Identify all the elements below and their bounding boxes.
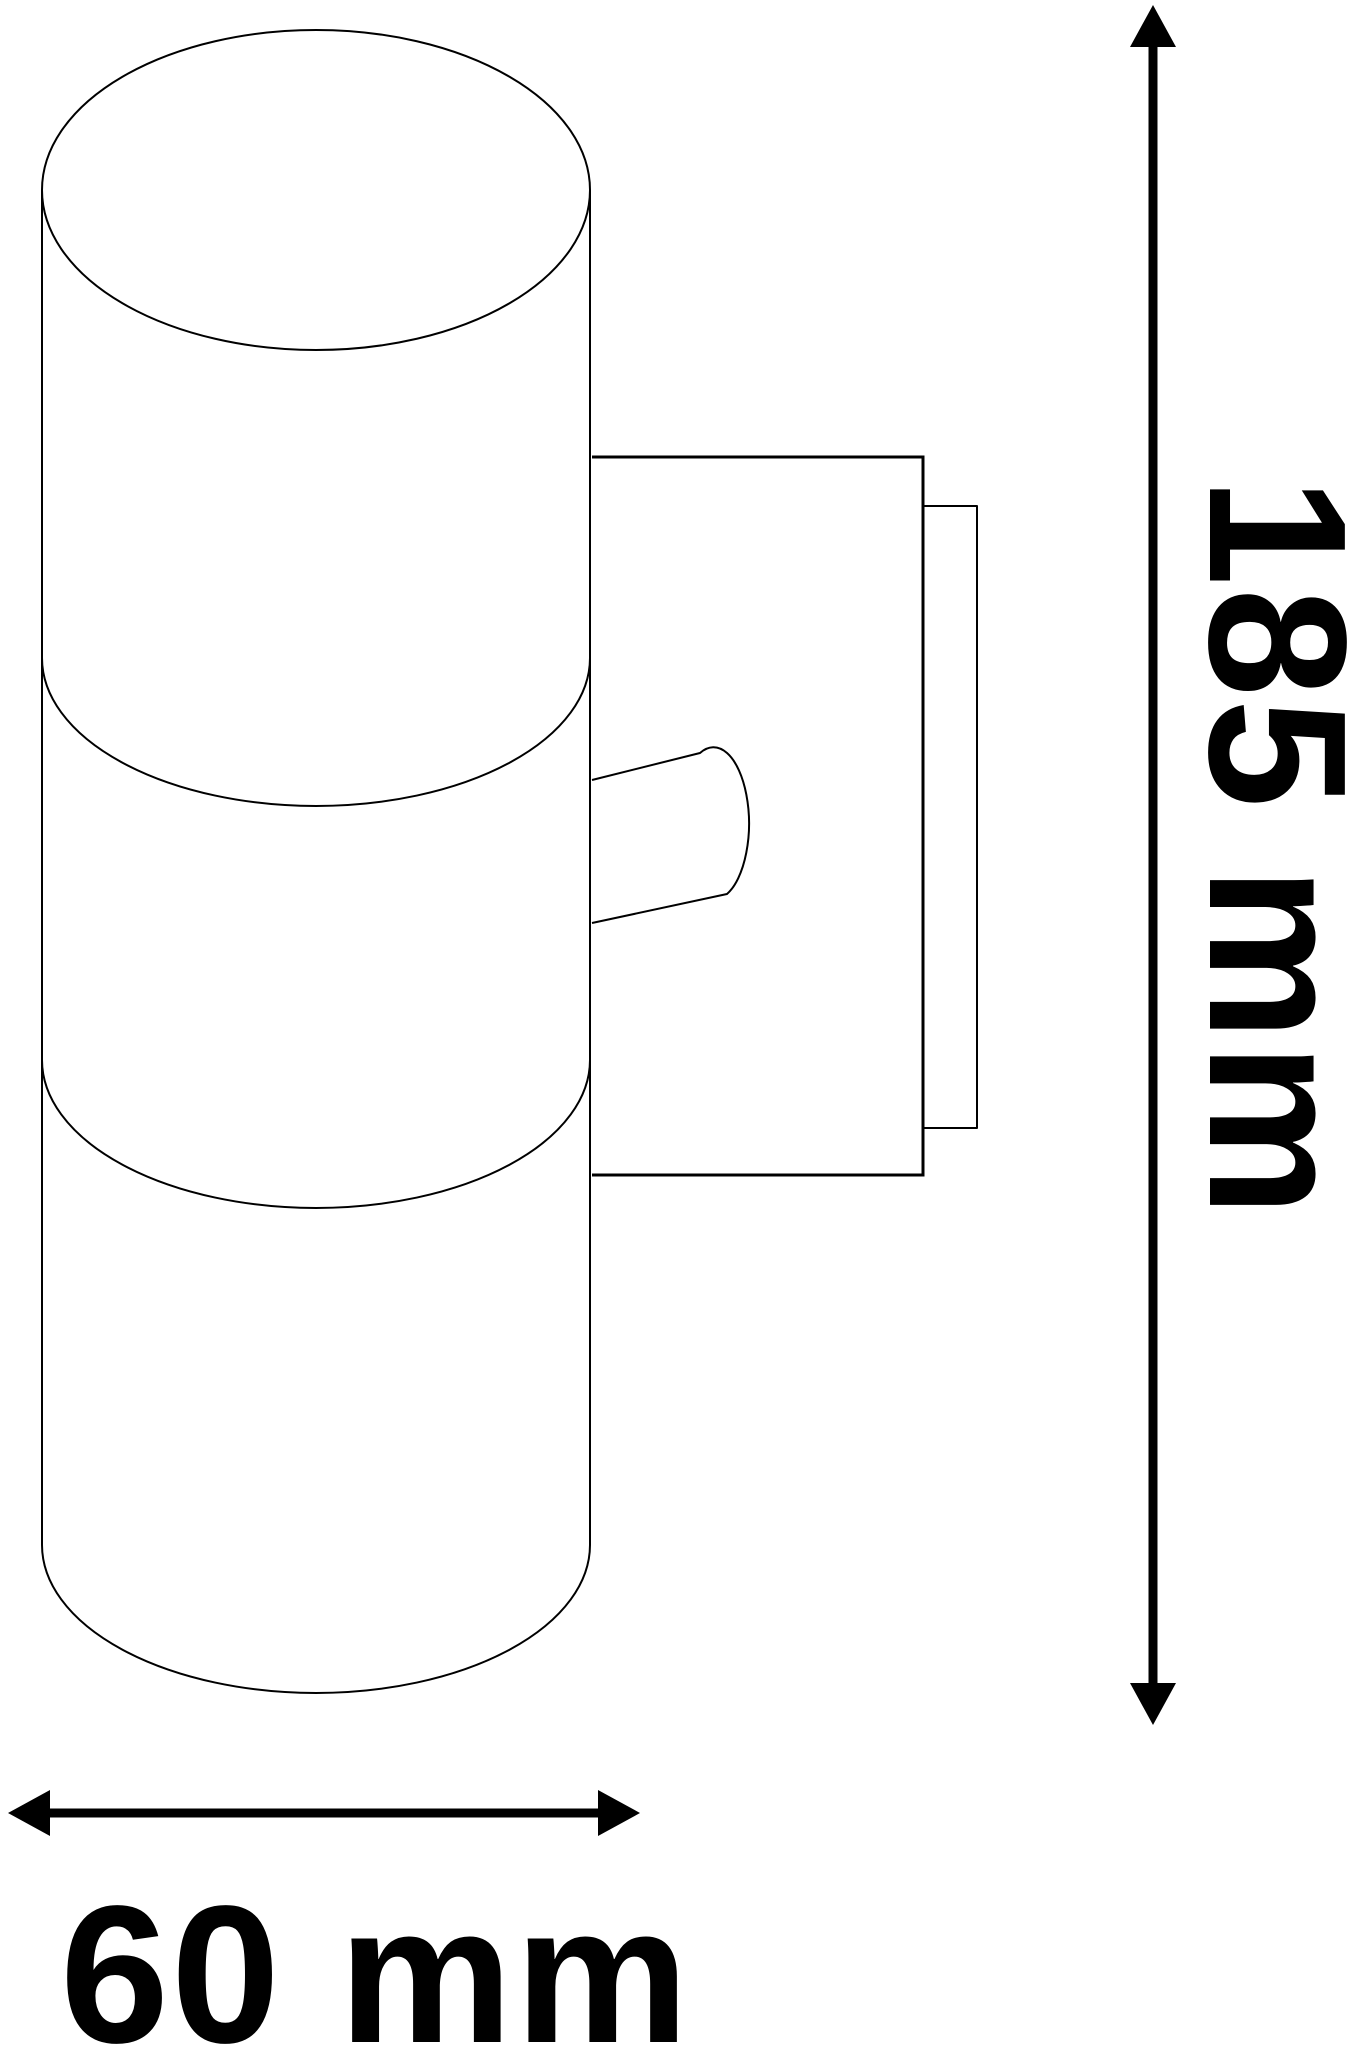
lamp-seam-lower-arc <box>42 1060 590 1208</box>
height-dimension-label: 185 mm <box>1168 477 1366 1219</box>
lamp-dimension-diagram: 185 mm 60 mm <box>0 0 1366 2048</box>
width-arrowhead-left-icon <box>8 1790 50 1836</box>
lamp-seam-upper-arc <box>42 658 590 806</box>
height-arrowhead-top-icon <box>1130 5 1176 47</box>
wall-plate-rect <box>923 506 977 1128</box>
bracket-arm <box>592 747 749 923</box>
width-dimension: 60 mm <box>8 1790 691 2048</box>
width-arrowhead-right-icon <box>598 1790 640 1836</box>
lamp-mount <box>592 457 977 1175</box>
diagram-canvas: 185 mm 60 mm <box>0 0 1366 2048</box>
lamp-top-face-ellipse <box>42 30 590 350</box>
height-arrowhead-bottom-icon <box>1130 1683 1176 1725</box>
lamp-bottom-edge-arc <box>42 1545 590 1693</box>
lamp-body <box>42 30 590 1693</box>
width-dimension-label: 60 mm <box>60 1865 691 2048</box>
height-dimension: 185 mm <box>1130 5 1366 1725</box>
mounting-housing-rect <box>592 457 923 1175</box>
